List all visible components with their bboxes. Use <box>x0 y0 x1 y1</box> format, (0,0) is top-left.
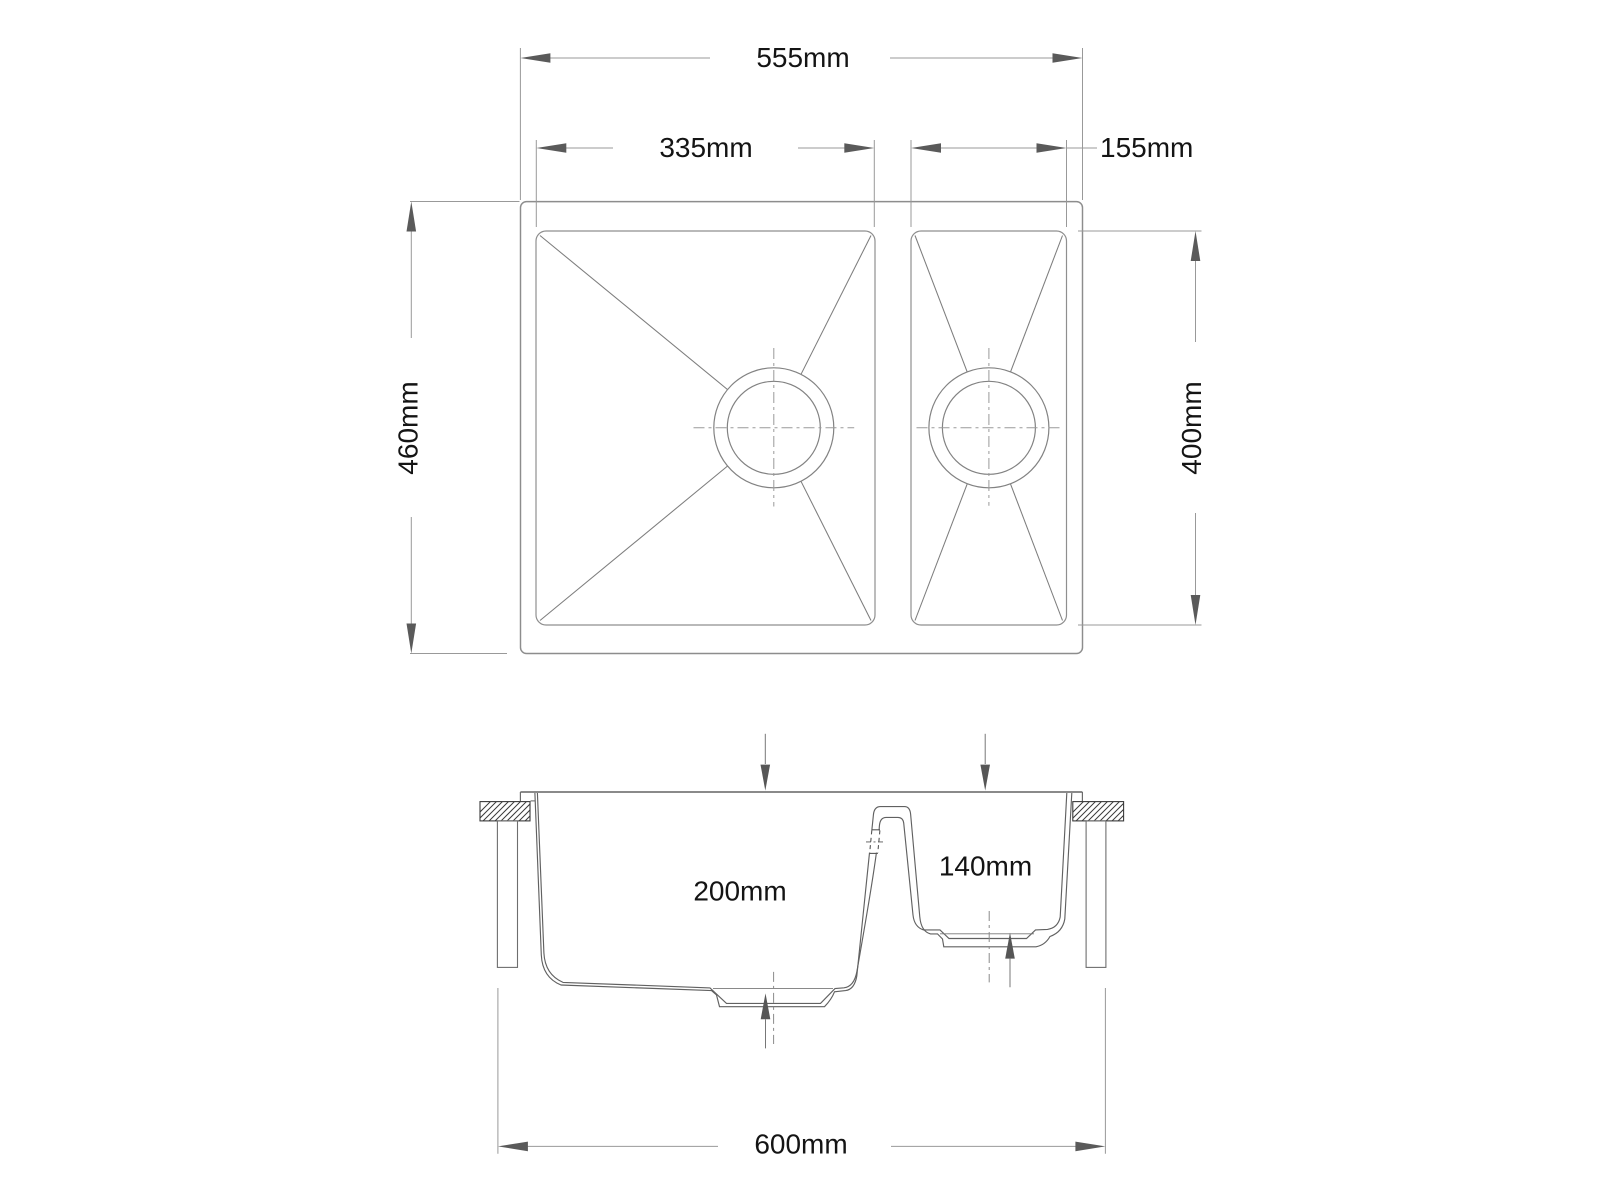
svg-text:400mm: 400mm <box>1176 381 1207 474</box>
svg-text:555mm: 555mm <box>756 42 849 73</box>
svg-text:600mm: 600mm <box>754 1128 847 1159</box>
svg-text:460mm: 460mm <box>393 381 424 474</box>
svg-text:335mm: 335mm <box>659 132 752 163</box>
svg-text:155mm: 155mm <box>1100 132 1193 163</box>
svg-text:140mm: 140mm <box>939 850 1032 881</box>
svg-text:200mm: 200mm <box>693 875 786 906</box>
